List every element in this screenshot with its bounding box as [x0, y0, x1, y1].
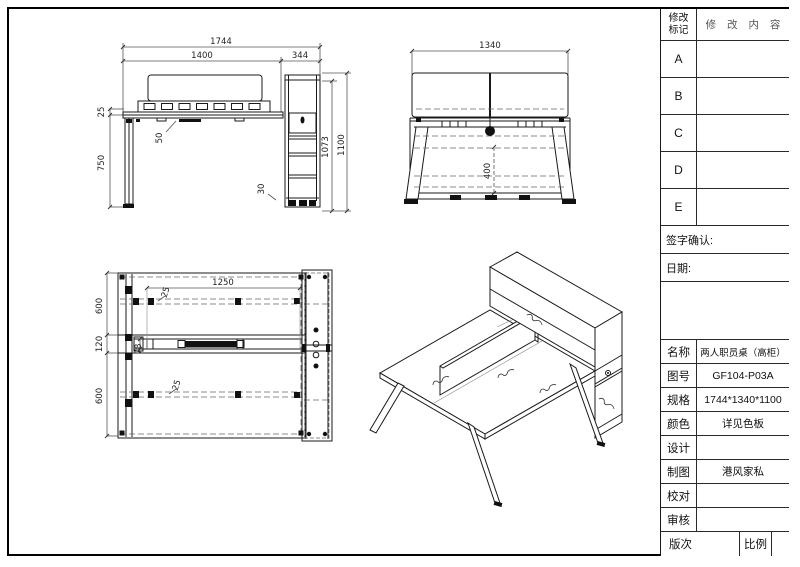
field-name-label: 名称 — [661, 340, 697, 363]
field-row-spec: 规格 1744*1340*1100 — [661, 387, 789, 411]
title-block-spacer — [661, 281, 789, 339]
iso-view — [335, 215, 635, 515]
sign-confirm-label: 签字确认: — [661, 226, 713, 253]
revision-row-b: B — [661, 77, 789, 114]
dim-beam-clearance: 400 — [483, 163, 493, 179]
front-dim-lines — [110, 43, 351, 211]
field-spec-label: 规格 — [661, 388, 697, 411]
dim-beam-width: 78 — [134, 344, 144, 355]
dim-cabinet-height: 1073 — [321, 136, 331, 158]
field-design-label: 设计 — [661, 436, 697, 459]
date-label: 日期: — [661, 254, 691, 281]
field-draft-label: 制图 — [661, 460, 697, 483]
dim-desk-width: 1400 — [191, 51, 213, 61]
revision-row-e: E — [661, 188, 789, 225]
field-row-audit: 审核 — [661, 507, 789, 531]
field-audit-label: 审核 — [661, 508, 697, 531]
front-desk-fittings — [123, 119, 201, 208]
revision-row-e-content — [697, 189, 789, 225]
revision-row-a-label: A — [661, 41, 697, 77]
dim-offset-bottom: 25 — [171, 379, 184, 392]
field-spec-value: 1744*1340*1100 — [697, 388, 789, 411]
plan-cabinet — [302, 270, 332, 441]
drawing-sheet: 1744 1400 344 25 750 50 30 1073 1100 — [0, 0, 800, 567]
field-row-drawing-no: 图号 GF104-P03A — [661, 363, 789, 387]
date-row: 日期: — [661, 253, 789, 281]
field-color-label: 颜色 — [661, 412, 697, 435]
sign-confirm-row: 签字确认: — [661, 225, 789, 253]
revision-header-row: 修改标记 修 改 内 容 — [661, 9, 789, 40]
dim-overall-width: 1744 — [210, 37, 232, 47]
front-view: 1744 1400 344 25 750 50 30 1073 1100 — [95, 25, 365, 225]
title-block: 修改标记 修 改 内 容 A B C D E 签字确认: 日期: — [660, 9, 789, 556]
side-view: 1340 400 — [390, 35, 590, 225]
revision-row-d: D — [661, 151, 789, 188]
front-dim-ticks — [108, 45, 349, 213]
scale-label: 比例 — [740, 532, 772, 556]
front-cabinet — [285, 75, 320, 207]
iso-cabinet-knob — [607, 372, 609, 374]
field-row-name: 名称 两人职员桌（高柜） — [661, 339, 789, 363]
field-row-color: 颜色 详见色板 — [661, 411, 789, 435]
revision-row-d-label: D — [661, 152, 697, 188]
dim-plinth-height: 30 — [257, 184, 267, 195]
field-name-value: 两人职员桌（高柜） — [697, 340, 789, 363]
revision-row-e-label: E — [661, 189, 697, 225]
field-row-proof: 校对 — [661, 483, 789, 507]
iso-leg-feet — [494, 441, 606, 507]
scale-value — [772, 532, 789, 556]
side-dim-lines — [412, 51, 568, 75]
dim-top-thickness: 25 — [97, 107, 107, 118]
field-design-value — [697, 436, 789, 459]
dim-center-band: 120 — [95, 336, 105, 352]
field-draft-value: 港风家私 — [697, 460, 789, 483]
dim-worktop-length: 1250 — [212, 278, 234, 288]
dim-near-depth: 600 — [95, 298, 105, 314]
field-proof-value — [697, 484, 789, 507]
revision-row-c-label: C — [661, 115, 697, 151]
footer-row: 版次 比例 — [661, 531, 789, 556]
plan-view: 1250 600 120 600 25 25 78 — [90, 260, 355, 450]
field-drawing-no-value: GF104-P03A — [697, 364, 789, 387]
field-row-design: 设计 — [661, 435, 789, 459]
field-proof-label: 校对 — [661, 484, 697, 507]
field-drawing-no-label: 图号 — [661, 364, 697, 387]
revision-row-a-content — [697, 41, 789, 77]
dim-overall-depth: 1340 — [479, 41, 501, 51]
plan-cabinet-hidden — [304, 273, 330, 438]
side-feet — [404, 118, 576, 204]
field-audit-value — [697, 508, 789, 531]
dim-overall-height: 1100 — [337, 134, 347, 156]
version-label: 版次 — [661, 532, 740, 556]
plan-hidden-lines — [120, 275, 303, 436]
field-row-draft: 制图 港风家私 — [661, 459, 789, 483]
revision-row-b-content — [697, 78, 789, 114]
front-cabinet-fittings — [288, 117, 316, 207]
revision-content-label: 修 改 内 容 — [697, 9, 789, 40]
revision-row-b-label: B — [661, 78, 697, 114]
dim-far-depth: 600 — [95, 388, 105, 404]
dim-leg-height: 750 — [97, 155, 107, 171]
revision-row-d-content — [697, 152, 789, 188]
field-color-value: 详见色板 — [697, 412, 789, 435]
iso-back-leg-left — [370, 383, 404, 433]
revision-mark-label: 修改标记 — [661, 9, 697, 40]
revision-row-c: C — [661, 114, 789, 151]
revision-row-c-content — [697, 115, 789, 151]
dim-apron-drop: 50 — [155, 133, 165, 144]
plan-desk — [118, 273, 305, 438]
dim-cabinet-width: 344 — [292, 51, 308, 61]
revision-row-a: A — [661, 40, 789, 77]
